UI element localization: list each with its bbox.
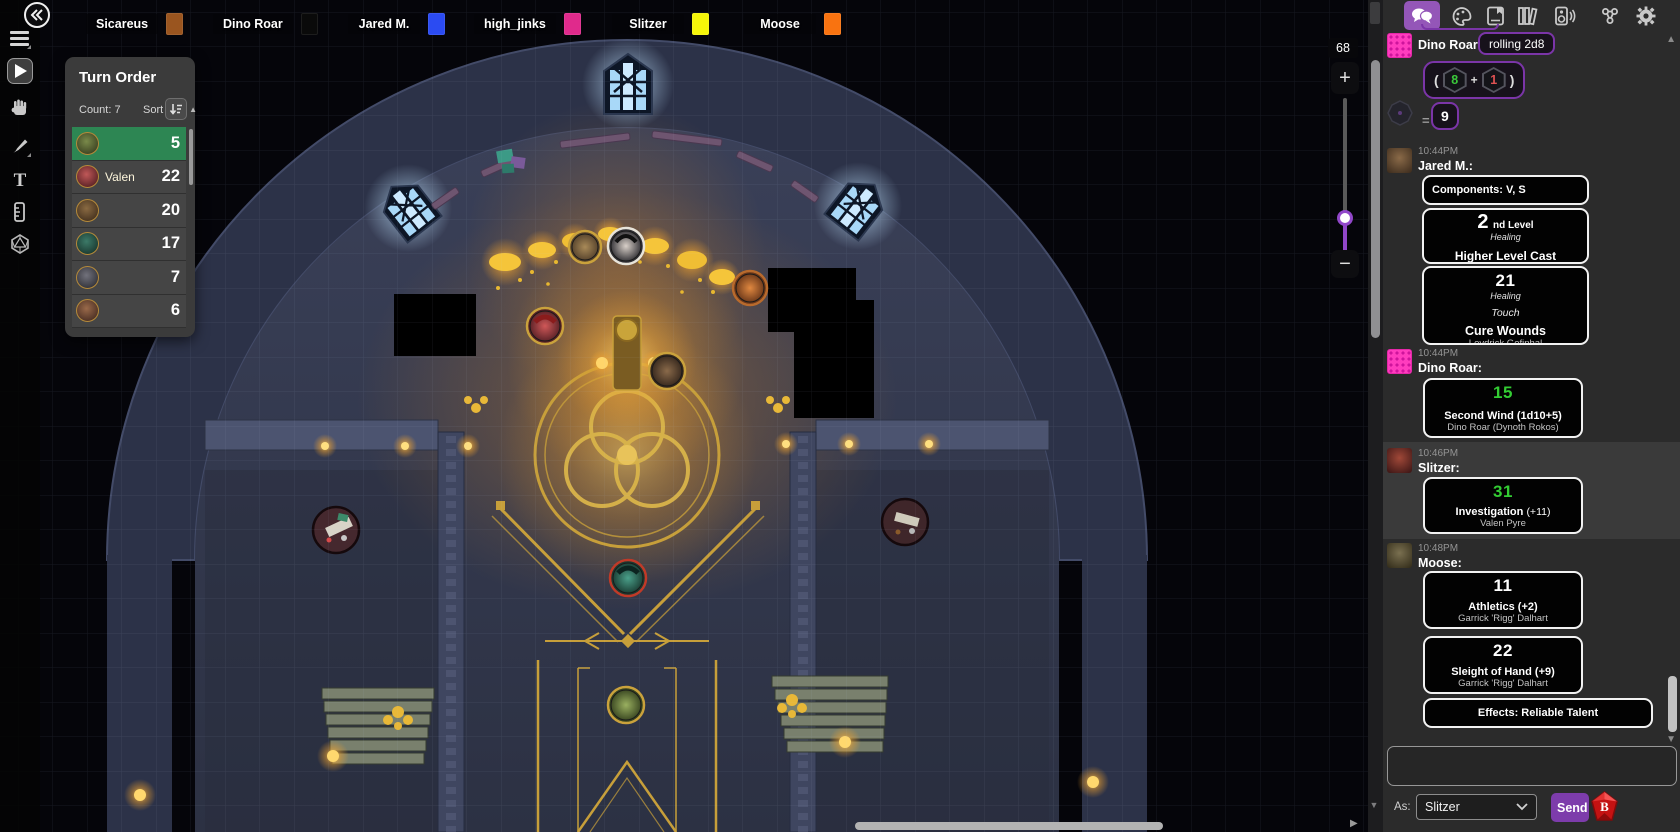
roll-die-icon: [1387, 100, 1413, 131]
roll-total: 15: [1493, 383, 1513, 403]
message-author: Moose:: [1418, 556, 1462, 570]
tab-collections[interactable]: [1595, 3, 1625, 29]
chat-message: 10:46PM Slitzer: 31 Investigation (+11) …: [1383, 442, 1680, 539]
timestamp: 10:44PM: [1418, 348, 1458, 359]
zoom-slider-fill: [1343, 222, 1347, 252]
chat-message: 10:44PM Jared M.: Components: V, S 2 nd …: [1383, 140, 1680, 346]
heal-amount: 21: [1496, 271, 1516, 291]
roll-total: 11: [1494, 576, 1513, 596]
selected-character: Slitzer: [1425, 800, 1460, 814]
effects-card: Effects: Reliable Talent: [1423, 698, 1653, 728]
bookshelf-icon: [1517, 6, 1539, 26]
beyond20-letter: B: [1600, 799, 1609, 815]
message-author: Slitzer:: [1418, 461, 1460, 475]
equals-sign: =: [1422, 113, 1430, 128]
measure-tool-button[interactable]: [7, 199, 33, 225]
speak-as-select[interactable]: Slitzer: [1416, 794, 1537, 820]
d8-die-icon: 8: [1443, 67, 1467, 93]
text-tool-icon: T: [14, 171, 27, 190]
scroll-right-icon[interactable]: ▶: [1350, 818, 1358, 829]
roll-name: Second Wind (1d10+5): [1444, 410, 1562, 422]
page-scrollbar-thumb[interactable]: [1371, 60, 1380, 338]
roll-total: 22: [1493, 641, 1513, 661]
zoom-slider-thumb[interactable]: [1337, 210, 1353, 226]
collapse-toolbar-button[interactable]: [24, 2, 50, 28]
turn-order-list: 5 Valen 22 20 17 7: [72, 127, 186, 328]
palette-icon: [1451, 6, 1473, 26]
turn-sort-label: Sort: [143, 104, 163, 116]
chat-message: 10:44PM Dino Roar: 15 Second Wind (1d10+…: [1383, 346, 1680, 442]
hand-icon: [10, 98, 30, 118]
initiative-value: 20: [162, 201, 180, 220]
character-source: Garrick 'Rigg' Dalhart: [1458, 613, 1548, 624]
spell-components-card: Components: V, S: [1422, 175, 1589, 205]
message-author: Jared M.:: [1418, 159, 1473, 173]
toolbar: T: [0, 0, 40, 832]
turn-row[interactable]: Valen 22: [72, 161, 186, 195]
turn-row[interactable]: 20: [72, 194, 186, 228]
token-witch[interactable]: [608, 228, 644, 264]
roll-formula: ( 8 + 1 ): [1423, 61, 1525, 99]
roll-result-card: 22 Sleight of Hand (+9) Garrick 'Rigg' D…: [1423, 636, 1583, 694]
select-tool-button[interactable]: [7, 58, 33, 84]
play-cursor-icon: [11, 62, 29, 80]
die-result: 1: [1490, 73, 1497, 87]
pan-tool-button[interactable]: [7, 95, 33, 121]
gear-icon: [1636, 6, 1656, 26]
zoom-in-button[interactable]: +: [1331, 62, 1359, 94]
send-button[interactable]: Send: [1551, 793, 1589, 822]
initiative-value: 7: [171, 268, 180, 287]
turn-row[interactable]: 5: [72, 127, 186, 161]
turn-row[interactable]: 17: [72, 228, 186, 262]
timestamp: 10:46PM: [1418, 448, 1458, 459]
initiative-value: 5: [171, 134, 180, 153]
token-skull-figure[interactable]: [608, 687, 644, 723]
character-source: Dino Roar (Dynoth Rokos): [1447, 422, 1558, 433]
zoom-out-button[interactable]: −: [1331, 250, 1359, 278]
message-author: Dino Roar:: [1418, 38, 1482, 52]
avatar: [1387, 543, 1412, 568]
journal-book-icon: [1486, 6, 1505, 26]
spell-level-suffix: nd Level: [1493, 220, 1534, 231]
turn-order-scrollbar[interactable]: [189, 129, 193, 185]
page-scrollbar-top[interactable]: [1370, 2, 1380, 24]
avatar: [1387, 33, 1412, 58]
tab-jukebox[interactable]: [1550, 3, 1580, 29]
chat-scroll-down-icon[interactable]: ▼: [1666, 734, 1676, 745]
components-text: Components: V, S: [1432, 184, 1526, 196]
token-avatar: [76, 165, 99, 188]
message-author: Dino Roar:: [1418, 361, 1482, 375]
effects-text: Effects: Reliable Talent: [1478, 707, 1598, 719]
roll-result: 9: [1431, 102, 1459, 130]
avatar: [1387, 148, 1412, 173]
token-dark-haired-man[interactable]: [649, 353, 685, 389]
chat-message: 10:48PM Moose: 11 Athletics (+2) Garrick…: [1383, 540, 1680, 732]
collections-icon: [1600, 6, 1620, 26]
chevron-down-icon: [1516, 803, 1528, 811]
dice-tool-button[interactable]: [7, 231, 33, 257]
spell-school: Healing: [1490, 232, 1521, 242]
roll-result-card: 11 Athletics (+2) Garrick 'Rigg' Dalhart: [1423, 571, 1583, 629]
page-scrollbar: ▼: [1368, 0, 1383, 832]
roll-result-card: 15 Second Wind (1d10+5) Dino Roar (Dynot…: [1423, 378, 1583, 438]
roll-total: 31: [1493, 482, 1513, 502]
spell-school: Healing: [1490, 291, 1521, 301]
roll-name: Investigation (+11): [1456, 506, 1551, 518]
ruler-icon: [13, 202, 27, 222]
token-avatar: [76, 266, 99, 289]
turn-count-label: Count: 7: [79, 104, 121, 116]
card-title: Higher Level Cast: [1455, 249, 1556, 263]
horizontal-scrollbar-thumb[interactable]: [855, 822, 1163, 830]
roll20-tabletop-app: Sicareus Dino Roar Jared M. high_jinks S…: [0, 0, 1680, 832]
sort-button[interactable]: [165, 98, 187, 120]
sort-descending-icon: [169, 103, 183, 116]
timestamp: 10:48PM: [1418, 543, 1458, 554]
tab-compendium[interactable]: [1513, 3, 1543, 29]
speaker-icon: [1554, 6, 1576, 26]
spell-level-card: 2 nd Level Healing Higher Level Cast: [1422, 208, 1589, 264]
avatar: [1387, 448, 1412, 473]
roll-name: Sleight of Hand (+9): [1451, 666, 1555, 678]
chat-bubbles-icon: [1411, 7, 1433, 25]
spell-level-number: 2: [1477, 211, 1488, 233]
paintbrush-icon: [11, 137, 29, 155]
character-source: Levdrick Gefinhal: [1469, 338, 1542, 345]
token-pirate[interactable]: [610, 560, 646, 596]
scroll-up-icon[interactable]: ▲: [189, 105, 197, 114]
chat-input[interactable]: [1387, 746, 1677, 786]
token-avatar: [76, 299, 99, 322]
paren-close: ): [1510, 72, 1515, 88]
scroll-down-icon[interactable]: ▼: [1370, 800, 1379, 810]
initiative-value: 6: [171, 301, 180, 320]
roll-modifier: (+11): [1526, 506, 1550, 518]
turn-order-panel: Turn Order Count: 7 Sort 5 Valen 22: [65, 57, 195, 337]
d8-die-icon: 1: [1482, 67, 1506, 93]
turn-row[interactable]: 7: [72, 261, 186, 295]
token-red-hat[interactable]: [527, 308, 563, 344]
draw-tool-button[interactable]: [7, 133, 33, 159]
chat-scrollbar-thumb[interactable]: [1668, 676, 1677, 732]
roll-name: Athletics (+2): [1468, 601, 1537, 613]
double-chevron-left-icon: [30, 9, 44, 21]
turn-order-title: Turn Order: [79, 69, 156, 86]
token-avatar: [76, 199, 99, 222]
map-area: Sicareus Dino Roar Jared M. high_jinks S…: [0, 0, 1368, 832]
initiative-value: 22: [162, 167, 180, 186]
token-orange-figure[interactable]: [733, 271, 767, 305]
token-avatar: [76, 132, 99, 155]
turn-row[interactable]: 6: [72, 295, 186, 329]
character-source: Garrick 'Rigg' Dalhart: [1458, 678, 1548, 689]
character-source: Valen Pyre: [1480, 518, 1526, 529]
hamburger-icon: [10, 30, 30, 46]
speak-as-label: As:: [1394, 801, 1411, 813]
turn-token-name: Valen: [105, 170, 162, 184]
avatar: [1387, 349, 1412, 374]
paren-open: (: [1434, 72, 1439, 88]
chat-scroll-up-icon[interactable]: ▲: [1666, 34, 1676, 45]
roll-title-chip: rolling 2d8: [1478, 32, 1555, 55]
zoom-level-label: 68: [1328, 38, 1358, 58]
spell-result-card: 21 Healing Touch Cure Wounds Levdrick Ge…: [1422, 266, 1589, 345]
spell-name: Cure Wounds: [1465, 324, 1546, 338]
sidebar: Dino Roar: rolling 2d8 ( 8 + 1 ) = 9 10:…: [1383, 0, 1680, 832]
timestamp: 10:44PM: [1418, 146, 1458, 157]
text-tool-button[interactable]: T: [7, 167, 33, 193]
spell-range: Touch: [1491, 307, 1519, 319]
initiative-value: 17: [162, 234, 180, 253]
roll-result-card: 31 Investigation (+11) Valen Pyre: [1423, 477, 1583, 534]
die-result: 8: [1451, 73, 1458, 87]
map-canvas[interactable]: [0, 0, 1368, 832]
plus-sign: +: [1471, 73, 1478, 87]
tab-settings[interactable]: [1631, 3, 1661, 29]
menu-button[interactable]: [7, 25, 33, 51]
d20-icon: [10, 234, 30, 254]
token-bearded-man[interactable]: [569, 231, 601, 263]
beyond20-button[interactable]: B: [1591, 791, 1618, 822]
token-avatar: [76, 232, 99, 255]
chat-message: Dino Roar: rolling 2d8 ( 8 + 1 ) = 9: [1383, 30, 1680, 140]
